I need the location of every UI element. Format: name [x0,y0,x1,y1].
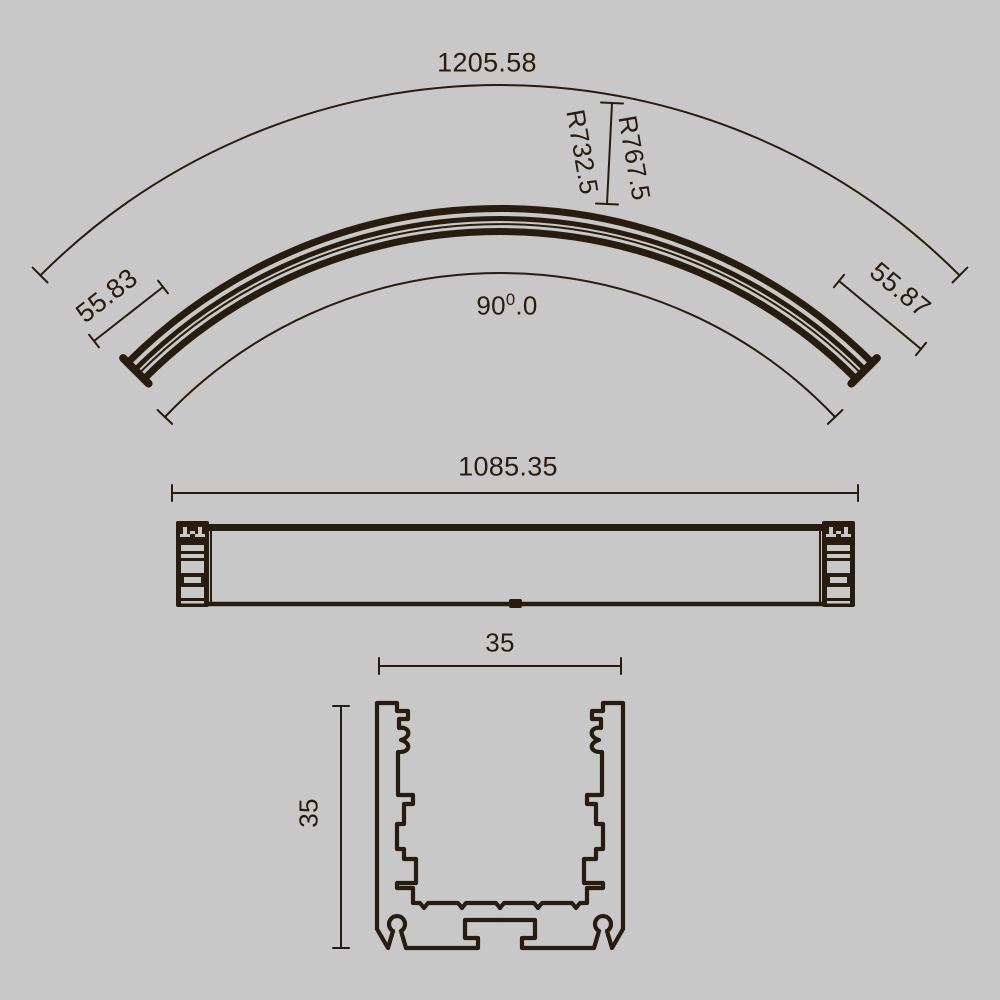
right-connector [822,521,855,607]
section-width-dimension [379,658,621,674]
angle-label: 900.0 [476,291,537,322]
profile-drawing [0,0,1000,1000]
straight-profile-view [172,485,858,608]
section-outline [377,703,623,948]
cross-section-view [333,658,623,948]
straight-profile-body [207,528,824,609]
outer-arc-dimension [33,85,968,282]
length-dimension-line [172,485,858,501]
arc-length-label: 1205.58 [437,48,537,79]
section-height-dimension [333,706,349,948]
angle-degree-mark: 0 [506,290,516,309]
section-width-label: 35 [485,628,515,659]
section-height-label: 35 [294,798,325,828]
angle-value: 90 [476,291,506,321]
angle-fraction: .0 [515,291,537,321]
curved-profile-view [33,85,968,424]
left-connector [176,521,209,607]
joint-mark [509,599,522,608]
straight-length-label: 1085.35 [458,452,558,483]
technical-drawing-page: 1205.58 R767.5 R732.5 55.83 55.87 900.0 … [0,0,1000,1000]
